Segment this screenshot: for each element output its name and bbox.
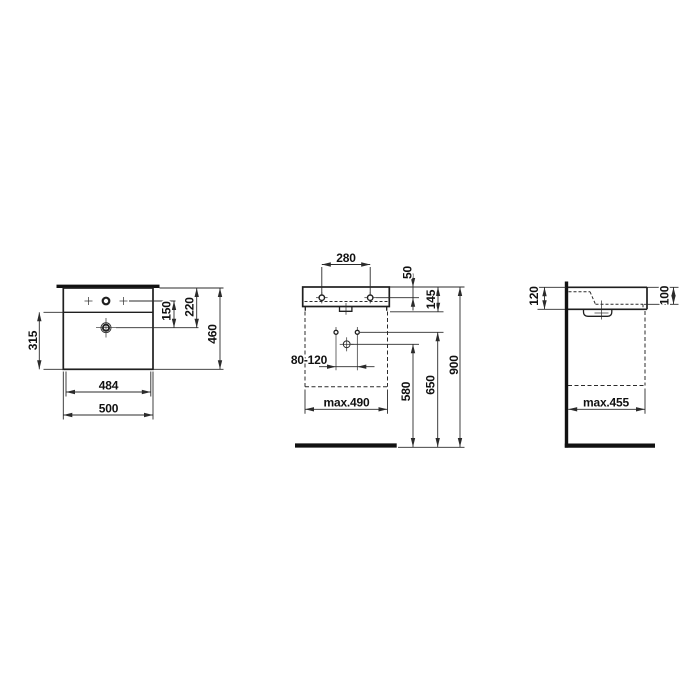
front-view-dimensions: 280 50 145 80-120 max.490 580 650 900 (291, 251, 465, 447)
outer-width-label: 500 (99, 402, 119, 416)
side-view (565, 282, 655, 448)
front-extension-lines (305, 267, 465, 447)
body-height-label: 145 (424, 289, 438, 309)
tap-hole-alt-left-cross (85, 297, 93, 305)
basin-depth-label: 100 (658, 285, 672, 305)
drain-center-cross (96, 318, 116, 338)
front-installation-zone (305, 312, 388, 387)
tap-hole-alt-right-cross (120, 297, 128, 305)
front-depth-label: 315 (26, 330, 40, 350)
rim-to-holes-label: 50 (401, 266, 415, 279)
side-basin-profile (568, 287, 647, 309)
supply-connection-right (355, 330, 359, 334)
max-width-label: max.490 (324, 395, 370, 409)
side-installation-zone (568, 311, 645, 386)
supply-spacing-label: 80-120 (291, 353, 328, 367)
tap-to-drain-label: 150 (160, 301, 174, 321)
washbasin-dimension-drawing: 315 150 220 460 484 500 (0, 0, 700, 700)
rim-height-label: 900 (447, 355, 461, 375)
drain-outlet-height-label: 580 (399, 381, 413, 401)
technical-drawing-canvas: 315 150 220 460 484 500 (0, 0, 700, 700)
tap-hole (103, 298, 110, 305)
rear-to-drain-label: 220 (183, 297, 197, 317)
inner-width-label: 484 (99, 379, 119, 393)
tap-hole-spacing-label: 280 (336, 251, 356, 265)
front-edge-height-label: 120 (527, 286, 541, 306)
plan-view-dimensions: 315 150 220 460 484 500 (26, 288, 224, 420)
total-depth-label: 460 (206, 324, 220, 344)
max-projection-label: max.455 (583, 395, 629, 409)
side-bowl-hidden-profile (569, 292, 644, 309)
supply-height-label: 650 (424, 375, 438, 395)
supply-connection-left (334, 330, 338, 334)
